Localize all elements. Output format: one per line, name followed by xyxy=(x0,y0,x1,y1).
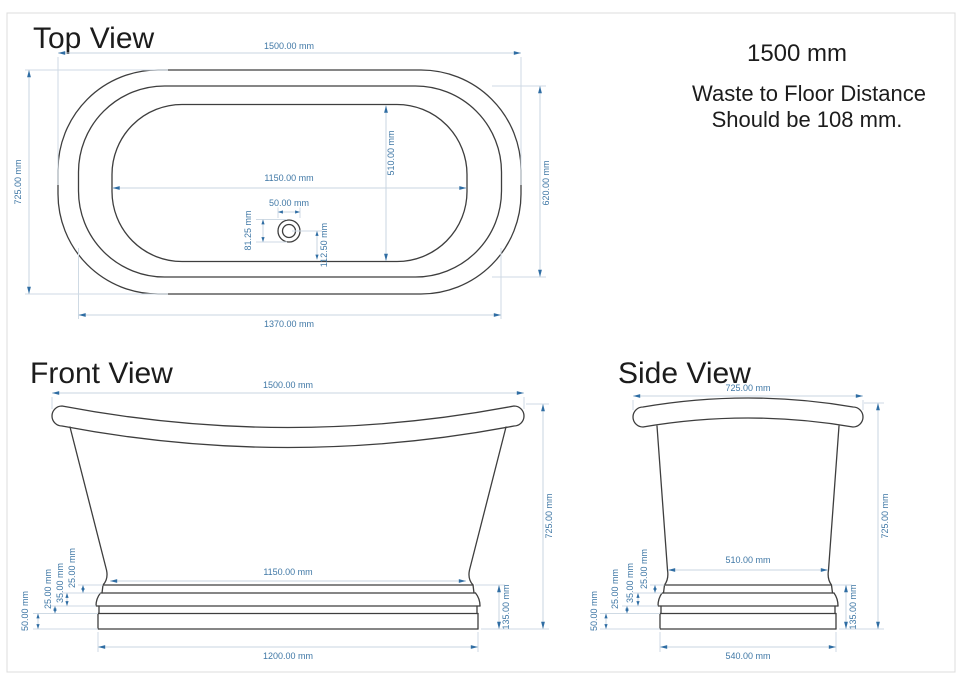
dim-label-front-band-4: 50.00 mm xyxy=(20,591,30,631)
dim-front-plinth-bands: 25.00 mm 35.00 mm 25.00 mm 50.00 mm xyxy=(20,548,103,631)
dim-label-top-basin-width: 1150.00 mm xyxy=(264,173,313,183)
top-view-title: Top View xyxy=(33,22,155,55)
bathtub-drawing-svg: Top View 1500.00 mm 725.00 mm 620.00 mm xyxy=(0,0,960,678)
dim-label-top-overall-depth: 725.00 mm xyxy=(13,159,23,204)
side-body-left-wall xyxy=(657,426,668,585)
dim-label-side-band-3: 25.00 mm xyxy=(610,569,620,609)
dim-front-plinth-height: 135.00 mm xyxy=(475,584,511,629)
dim-label-front-band-3: 25.00 mm xyxy=(43,569,53,609)
dim-side-plinth-bands: 25.00 mm 35.00 mm 25.00 mm 50.00 mm xyxy=(589,549,665,631)
dim-label-side-band-4: 50.00 mm xyxy=(589,591,599,631)
side-body-right-wall xyxy=(828,426,839,585)
dim-top-overall-depth: 725.00 mm xyxy=(13,70,168,294)
waste-note-line2: Should be 108 mm. xyxy=(712,107,903,132)
side-view: Side View 725.00 mm xyxy=(589,357,890,661)
dim-top-basin-depth: 510.00 mm xyxy=(386,106,396,262)
side-plinth xyxy=(658,585,838,629)
front-view-title: Front View xyxy=(30,357,173,390)
dim-front-body-bottom-width: 1150.00 mm xyxy=(110,567,466,581)
waste-note-line1: Waste to Floor Distance xyxy=(692,81,926,106)
dim-side-overall-height: 725.00 mm xyxy=(839,403,890,629)
dim-label-top-basin-depth: 510.00 mm xyxy=(386,130,396,175)
dim-front-base-width: 1200.00 mm xyxy=(98,632,478,661)
dim-label-front-band-1: 25.00 mm xyxy=(67,548,77,588)
dim-label-top-overall-width: 1500.00 mm xyxy=(264,41,314,51)
dim-drain-to-basin-edge: 112.50 mm xyxy=(292,223,329,267)
dim-top-overall-width: 1500.00 mm xyxy=(58,41,521,185)
dim-label-front-overall-height: 725.00 mm xyxy=(544,493,554,538)
side-rim xyxy=(633,398,863,427)
dim-label-drain-to-basin-edge: 112.50 mm xyxy=(319,223,329,267)
front-rim xyxy=(52,406,524,448)
dim-front-overall-height: 725.00 mm xyxy=(481,404,554,629)
dim-side-plinth-height: 135.00 mm xyxy=(833,584,858,629)
top-view: Top View 1500.00 mm 725.00 mm 620.00 mm xyxy=(13,22,551,329)
dim-side-base-depth: 540.00 mm xyxy=(660,632,836,661)
dim-label-front-plinth-height: 135.00 mm xyxy=(501,584,511,629)
front-plinth xyxy=(96,585,480,629)
dim-label-top-rim-width: 1370.00 mm xyxy=(264,319,314,329)
dim-label-side-overall-depth: 725.00 mm xyxy=(725,383,770,393)
dim-label-front-overall-width: 1500.00 mm xyxy=(263,380,313,390)
dim-label-side-overall-height: 725.00 mm xyxy=(880,493,890,538)
dim-label-top-rim-depth: 620.00 mm xyxy=(541,160,551,205)
dim-label-front-body-bottom-width: 1150.00 mm xyxy=(263,567,312,577)
dim-label-side-base-depth: 540.00 mm xyxy=(725,651,770,661)
front-body-right-wall xyxy=(469,427,506,585)
dim-drain-diameter: 50.00 mm xyxy=(269,198,309,218)
dim-label-front-base-width: 1200.00 mm xyxy=(263,651,313,661)
dim-label-side-plinth-height: 135.00 mm xyxy=(848,584,858,629)
technical-drawing-page: Top View 1500.00 mm 725.00 mm 620.00 mm xyxy=(0,0,960,678)
dim-label-side-body-bottom-depth: 510.00 mm xyxy=(725,555,770,565)
drawing-notes: 1500 mm Waste to Floor Distance Should b… xyxy=(692,40,926,132)
dim-label-drain-left: 81.25 mm xyxy=(243,210,253,250)
dim-label-side-band-2: 35.00 mm xyxy=(625,563,635,603)
dim-label-drain-diameter: 50.00 mm xyxy=(269,198,309,208)
dim-drain-left: 81.25 mm xyxy=(243,210,287,250)
dim-top-basin-width: 1150.00 mm xyxy=(113,173,467,188)
dim-top-rim-width: 1370.00 mm xyxy=(79,248,502,329)
dim-side-body-bottom-depth: 510.00 mm xyxy=(668,555,828,570)
front-view: Front View 1500.00 mm xyxy=(20,357,554,661)
dim-label-side-band-1: 25.00 mm xyxy=(639,549,649,589)
dim-label-front-band-2: 35.00 mm xyxy=(55,563,65,603)
size-note: 1500 mm xyxy=(747,40,847,67)
